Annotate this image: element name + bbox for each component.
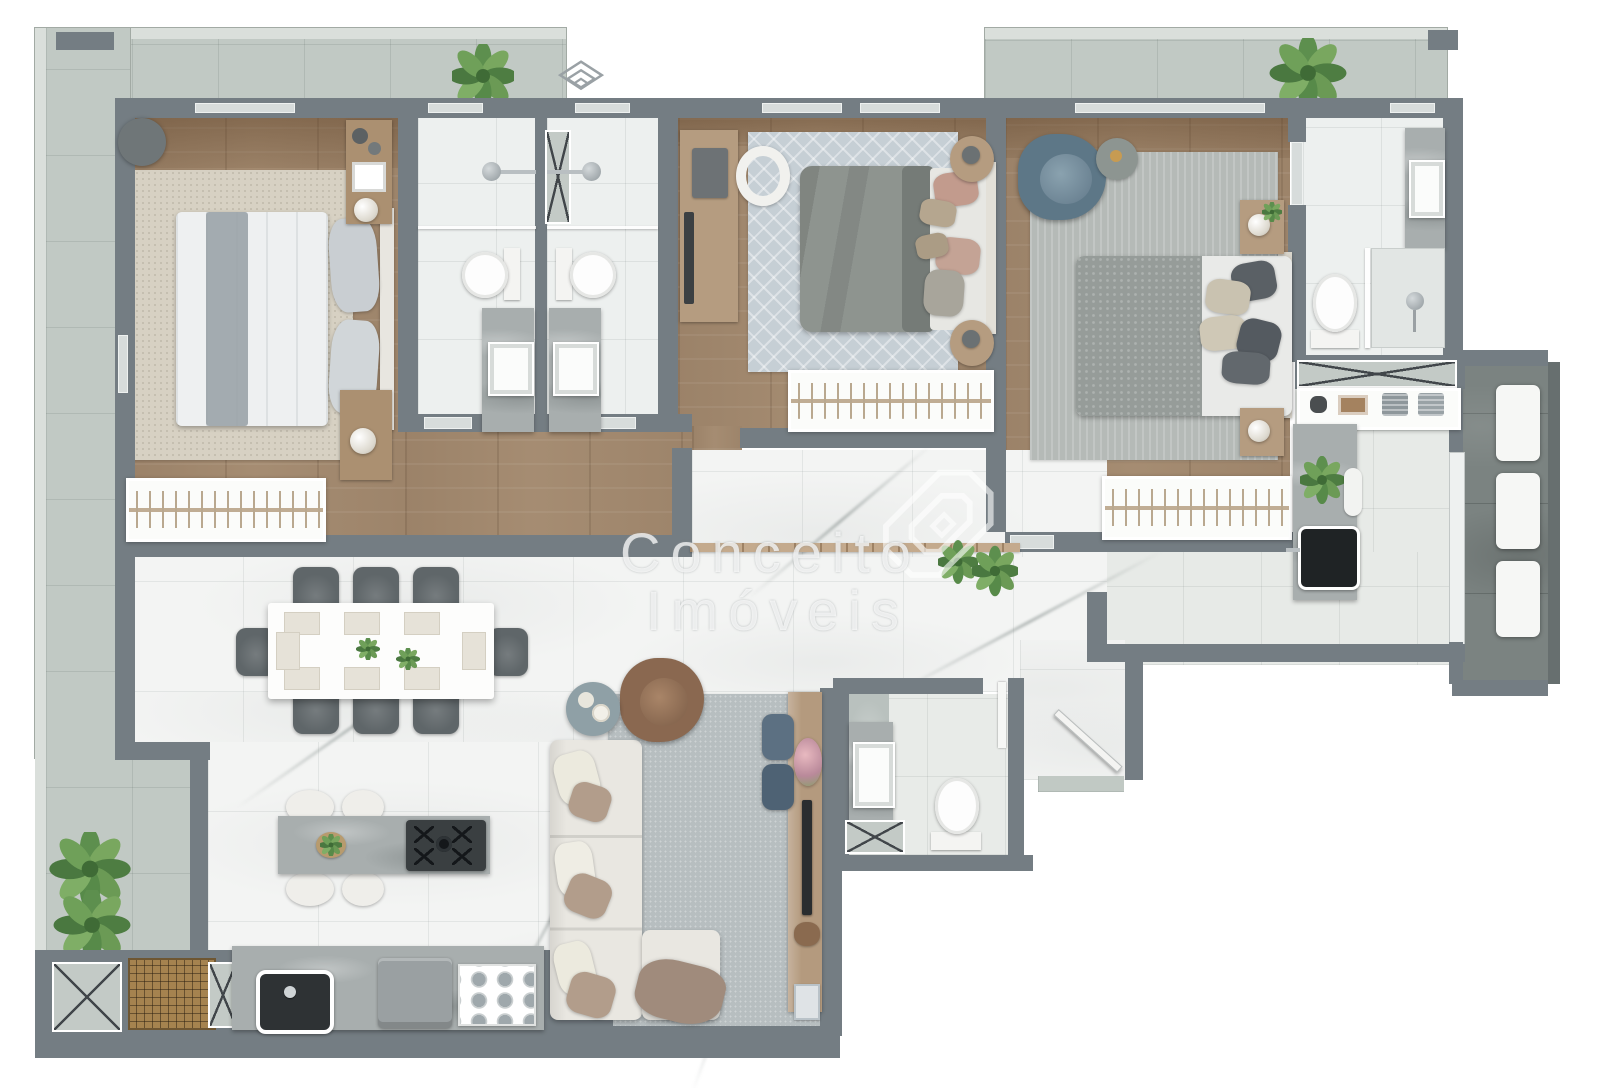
wall bbox=[1452, 680, 1548, 696]
pillow bbox=[327, 216, 381, 313]
vanity-sink bbox=[488, 342, 534, 396]
bed-throw bbox=[206, 212, 248, 426]
service-shaft bbox=[845, 820, 905, 854]
shower-glass bbox=[1365, 248, 1370, 348]
counter-plant bbox=[1300, 456, 1344, 504]
wall-left-lower bbox=[190, 756, 208, 958]
vanity-sink bbox=[553, 342, 599, 396]
wall bbox=[1428, 30, 1458, 50]
wall-right bbox=[1443, 98, 1463, 370]
wardrobe-rack bbox=[126, 478, 326, 542]
bowl-greens bbox=[320, 834, 342, 856]
flower-vase bbox=[794, 738, 822, 786]
terrace-lounger bbox=[1496, 561, 1540, 637]
table-decor bbox=[578, 692, 594, 708]
window bbox=[1390, 103, 1435, 113]
wall-entry-right bbox=[1125, 662, 1143, 780]
watermark-line2: Imóveis bbox=[646, 578, 909, 643]
placemat bbox=[344, 667, 380, 690]
vase bbox=[352, 128, 368, 144]
placemat bbox=[462, 632, 486, 670]
watermark-line1: Conceito bbox=[620, 520, 921, 585]
terrace-lounger bbox=[1496, 385, 1540, 461]
bedroom-middle-door-threshold bbox=[692, 426, 742, 450]
placemat bbox=[404, 667, 440, 690]
burner-center bbox=[436, 836, 452, 852]
burner bbox=[452, 848, 472, 865]
shelf-item bbox=[1310, 396, 1327, 413]
armchair-cushion bbox=[1040, 154, 1092, 204]
entry-threshold bbox=[1038, 776, 1124, 792]
balcony-door bbox=[762, 103, 842, 113]
placemat bbox=[404, 612, 440, 635]
shower-arm bbox=[498, 170, 536, 174]
burner bbox=[414, 848, 434, 865]
toilet-bowl bbox=[570, 252, 616, 298]
wall-bottom bbox=[35, 1026, 840, 1058]
laundry-sink bbox=[1298, 526, 1360, 590]
vanity-sink bbox=[853, 742, 895, 808]
burner bbox=[414, 826, 434, 843]
floor-plan-canvas: Conceito Imóveis bbox=[0, 0, 1600, 1088]
laundry-basin bbox=[1344, 468, 1362, 516]
shower-glass bbox=[547, 226, 658, 229]
table-lamp bbox=[350, 428, 376, 454]
shelf-item-basket bbox=[1382, 393, 1408, 416]
kitchen-stool bbox=[342, 872, 384, 906]
shower-head bbox=[482, 162, 501, 181]
desk-chair bbox=[736, 146, 790, 206]
tray bbox=[352, 162, 386, 192]
window bbox=[118, 335, 128, 393]
shower-stem bbox=[1413, 310, 1416, 332]
glass-tray bbox=[458, 964, 536, 1026]
wood-deck-grate bbox=[128, 958, 216, 1030]
placemat bbox=[276, 632, 300, 670]
bed-fuzzy-blanket bbox=[1076, 256, 1202, 416]
corner-pouf bbox=[118, 118, 166, 166]
table-lamp bbox=[354, 198, 378, 222]
shower-glass bbox=[418, 226, 536, 229]
console-book bbox=[794, 984, 820, 1020]
shelf-item-box bbox=[1338, 395, 1368, 415]
balcony-door bbox=[1075, 103, 1265, 113]
wall-step bbox=[1087, 592, 1107, 662]
placemat bbox=[284, 667, 320, 690]
wall-powder-right bbox=[1008, 678, 1024, 871]
window bbox=[428, 103, 483, 113]
wall-service-bottom bbox=[1107, 644, 1465, 662]
countertop-appliance bbox=[378, 958, 452, 1028]
pillow bbox=[922, 269, 965, 318]
armchair-cushion bbox=[640, 678, 688, 726]
dining-chair bbox=[488, 628, 528, 676]
burner bbox=[452, 826, 472, 843]
desk-monitor bbox=[684, 212, 694, 304]
service-shaft bbox=[1297, 360, 1457, 388]
table-lamp bbox=[962, 146, 980, 164]
watermark: Conceito Imóveis bbox=[598, 448, 1078, 668]
table-lamp bbox=[1248, 420, 1270, 442]
placemat bbox=[344, 612, 380, 635]
candle bbox=[1110, 150, 1122, 162]
terrace-lounger bbox=[1496, 473, 1540, 549]
tv bbox=[802, 800, 812, 915]
wardrobe-rack bbox=[1102, 476, 1292, 540]
toilet-bowl bbox=[935, 778, 979, 834]
shower-head bbox=[1406, 292, 1424, 310]
faucet bbox=[284, 986, 296, 998]
service-shaft bbox=[52, 962, 122, 1032]
toilet-tank bbox=[1311, 330, 1359, 348]
table-decor bbox=[592, 704, 610, 722]
table-lamp bbox=[962, 330, 980, 348]
table-centerpiece bbox=[396, 648, 420, 670]
wall-left bbox=[115, 98, 135, 758]
wall-powder-bottom bbox=[833, 855, 1033, 871]
toilet-bowl bbox=[1313, 274, 1357, 332]
toilet-tank bbox=[931, 832, 981, 850]
shower-head bbox=[582, 162, 601, 181]
terrace-glass-door bbox=[1449, 452, 1465, 646]
laptop bbox=[692, 148, 728, 198]
vanity-sink bbox=[1409, 160, 1445, 218]
console-decor bbox=[794, 922, 820, 946]
wall bbox=[1452, 350, 1548, 366]
wall-bath2-bedroom2 bbox=[658, 112, 678, 432]
shower-arm bbox=[547, 170, 585, 174]
window bbox=[195, 103, 295, 113]
shelf-item-basket bbox=[1418, 393, 1444, 416]
wall-powder-top bbox=[833, 678, 983, 694]
faucet bbox=[1286, 548, 1300, 552]
vase bbox=[368, 142, 381, 155]
blue-pouf bbox=[762, 714, 794, 760]
kitchen-stool bbox=[286, 872, 334, 906]
pillow bbox=[1221, 350, 1271, 385]
door-opening bbox=[1291, 142, 1303, 205]
wardrobe-rack bbox=[788, 370, 994, 432]
pillow bbox=[1204, 277, 1252, 317]
wall bbox=[56, 32, 114, 50]
blue-pouf bbox=[762, 764, 794, 810]
toilet-bowl bbox=[462, 252, 508, 298]
wall-masterbath-left bbox=[1288, 112, 1306, 142]
table-centerpiece bbox=[356, 638, 380, 660]
wall-bedroom1-bath bbox=[398, 112, 418, 418]
service-shaft bbox=[545, 130, 571, 224]
powder-door-leaf bbox=[998, 682, 1006, 748]
small-plant bbox=[1262, 202, 1282, 222]
kitchen-sink bbox=[256, 970, 334, 1034]
door-opening bbox=[424, 417, 472, 429]
corner-logo-nested-diamonds-icon bbox=[556, 58, 606, 112]
window bbox=[860, 103, 940, 113]
bed-duvet bbox=[176, 212, 328, 426]
